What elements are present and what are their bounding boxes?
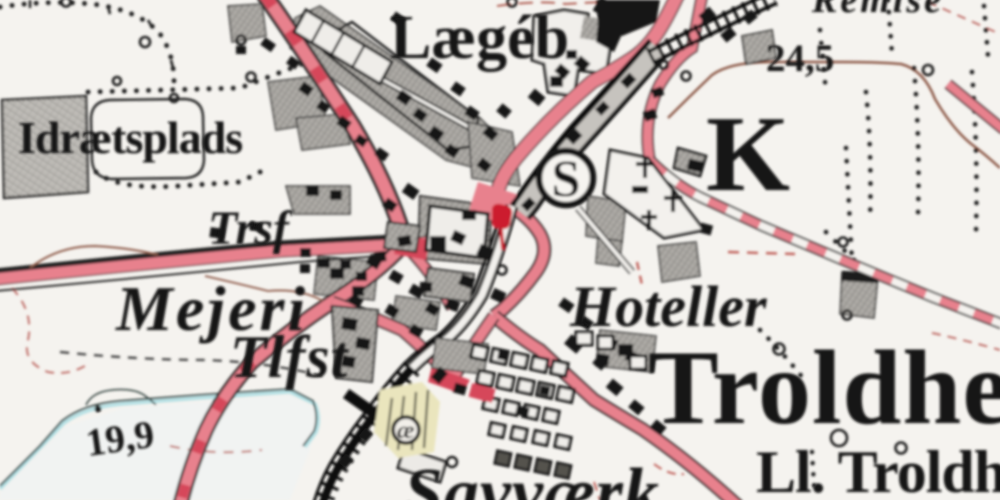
svg-text:S: S xyxy=(552,151,581,208)
svg-text:Remise: Remise xyxy=(811,0,944,21)
svg-text:K: K xyxy=(706,95,790,214)
svg-text:æ: æ xyxy=(397,418,414,444)
svg-text:Savværk: Savværk xyxy=(404,455,660,500)
svg-text:Ll. Troldh: Ll. Troldh xyxy=(756,439,1000,500)
svg-text:24,5: 24,5 xyxy=(766,37,834,80)
svg-text:Idrætsplads: Idrætsplads xyxy=(18,112,242,163)
svg-text:Lægéb: Lægéb xyxy=(390,4,569,72)
svg-text:Trsf: Trsf xyxy=(208,202,293,255)
svg-text:Troldhe: Troldhe xyxy=(648,329,1000,446)
svg-text:Tlfst: Tlfst xyxy=(230,324,350,390)
